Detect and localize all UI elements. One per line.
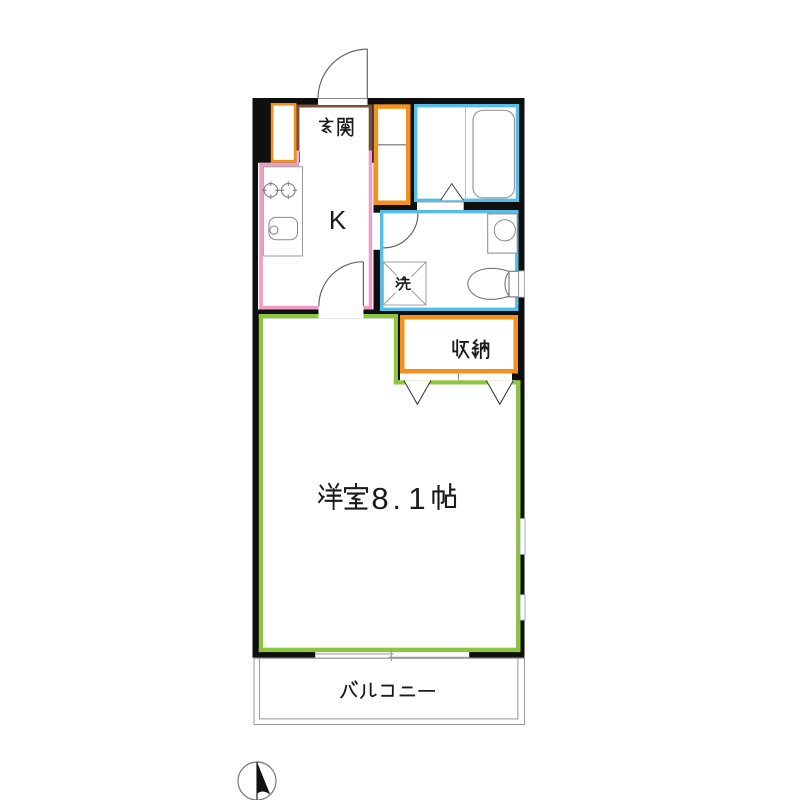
svg-text:1: 1 [408,481,425,516]
svg-text:.: . [393,483,401,516]
svg-text:8: 8 [371,481,388,516]
svg-text:K: K [329,205,347,235]
